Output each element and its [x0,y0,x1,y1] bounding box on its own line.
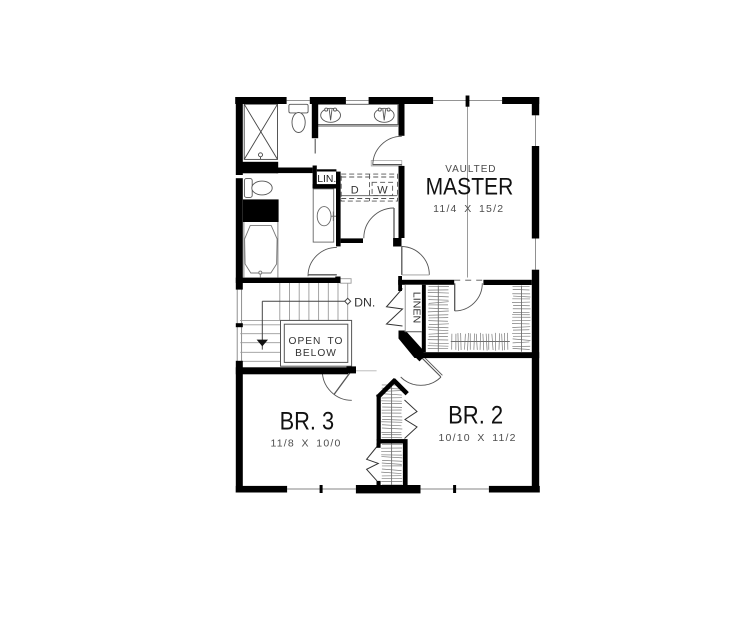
svg-text:W: W [377,185,388,197]
svg-text:MASTER: MASTER [426,173,514,200]
svg-text:11/4 X 15/2: 11/4 X 15/2 [433,203,504,215]
svg-text:LIN.: LIN. [317,174,336,185]
svg-text:10/10 X 11/2: 10/10 X 11/2 [439,432,517,444]
svg-text:OPEN TO: OPEN TO [289,336,344,347]
svg-text:LINEN: LINEN [411,292,422,324]
svg-text:BR. 3: BR. 3 [280,407,335,435]
svg-text:11/8 X 10/0: 11/8 X 10/0 [270,437,341,449]
svg-text:BR. 2: BR. 2 [448,402,503,430]
svg-text:D: D [351,185,359,197]
svg-text:BELOW: BELOW [295,348,337,359]
svg-text:DN.: DN. [354,296,375,310]
